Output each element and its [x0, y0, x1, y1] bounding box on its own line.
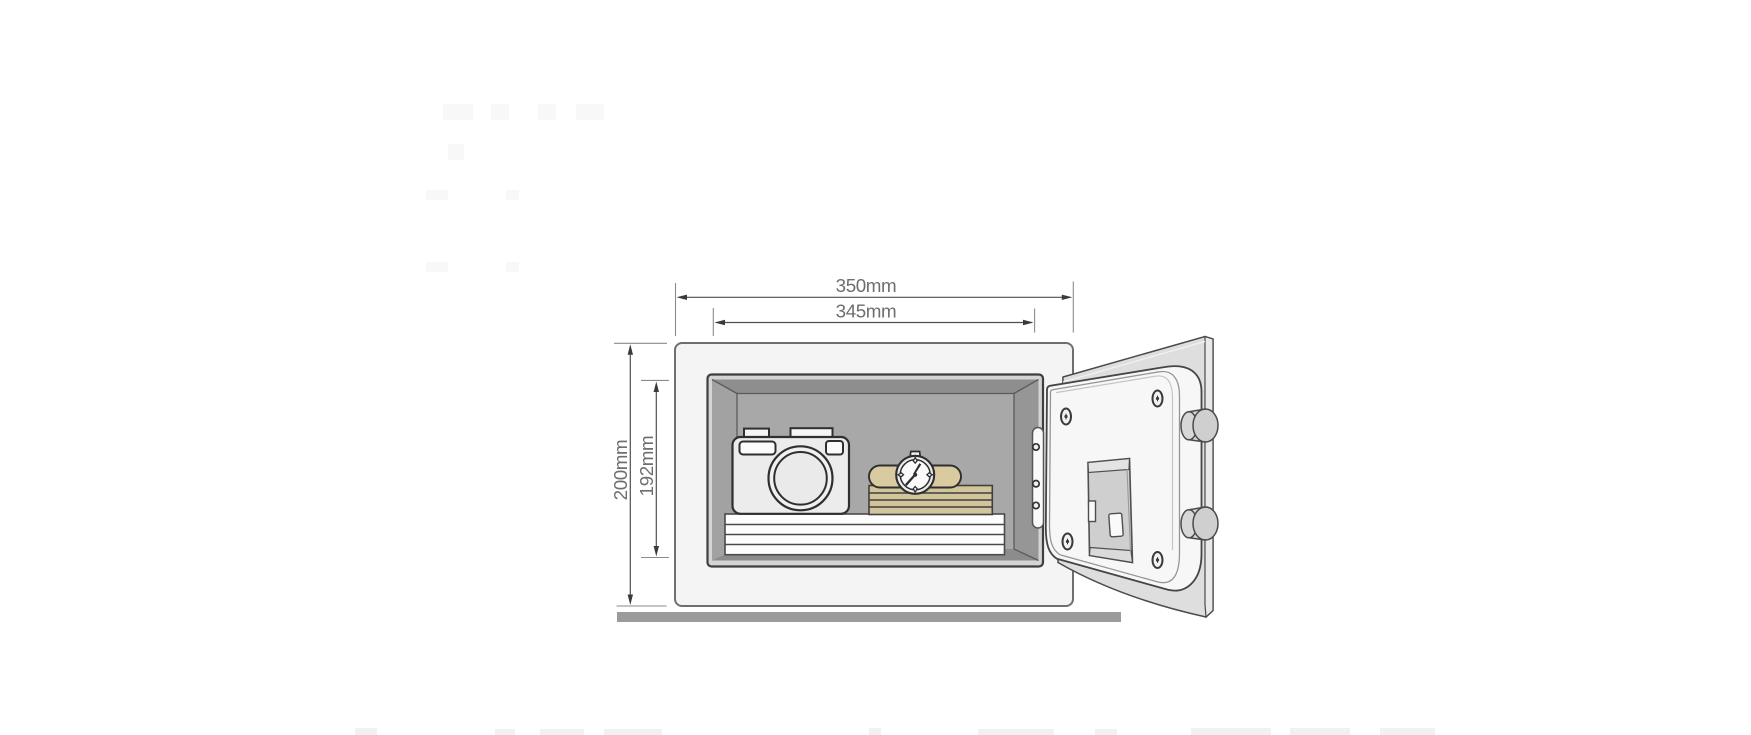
svg-text:200mm: 200mm — [610, 440, 631, 501]
svg-text:350mm: 350mm — [836, 275, 897, 296]
svg-text:192mm: 192mm — [636, 436, 657, 497]
svg-text:345mm: 345mm — [836, 301, 897, 322]
